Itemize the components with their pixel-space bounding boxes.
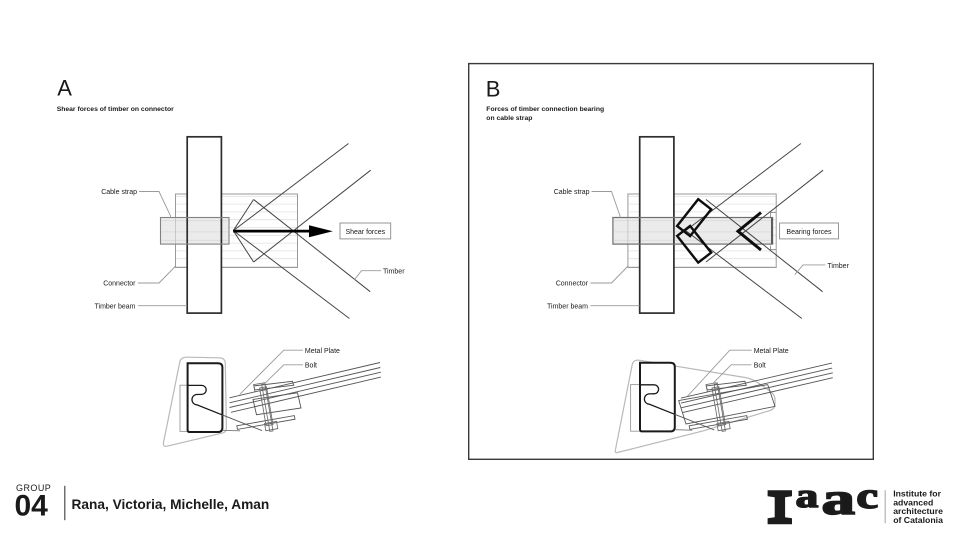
svg-text:a: a bbox=[822, 474, 855, 524]
svg-text:Bolt: Bolt bbox=[754, 363, 766, 370]
svg-text:Connector: Connector bbox=[556, 281, 589, 288]
svg-text:B: B bbox=[486, 77, 501, 102]
svg-text:on cable strap: on cable strap bbox=[486, 115, 532, 122]
svg-text:Connector: Connector bbox=[103, 281, 136, 288]
svg-text:Timber: Timber bbox=[383, 269, 405, 276]
svg-text:Timber: Timber bbox=[827, 263, 849, 270]
svg-text:Metal Plate: Metal Plate bbox=[754, 348, 789, 355]
svg-text:Cable strap: Cable strap bbox=[554, 189, 590, 196]
svg-text:Timber beam: Timber beam bbox=[547, 303, 588, 310]
svg-text:Timber beam: Timber beam bbox=[95, 303, 136, 310]
svg-text:Rana, Victoria, Michelle, Aman: Rana, Victoria, Michelle, Aman bbox=[72, 497, 270, 512]
svg-text:of Catalonia: of Catalonia bbox=[893, 515, 943, 525]
svg-text:A: A bbox=[57, 76, 72, 101]
svg-text:Forces of timber connection be: Forces of timber connection bearing bbox=[486, 106, 604, 113]
svg-text:Bolt: Bolt bbox=[305, 363, 317, 370]
svg-text:Bearing forces: Bearing forces bbox=[786, 229, 832, 236]
svg-text:a: a bbox=[796, 477, 819, 515]
svg-text:Cable strap: Cable strap bbox=[101, 189, 137, 196]
svg-text:Shear forces: Shear forces bbox=[345, 229, 385, 236]
svg-text:04: 04 bbox=[15, 490, 49, 523]
svg-text:Metal Plate: Metal Plate bbox=[305, 348, 340, 355]
svg-text:c: c bbox=[856, 476, 878, 517]
svg-text:Shear forces of timber on conn: Shear forces of timber on connector bbox=[57, 106, 174, 113]
